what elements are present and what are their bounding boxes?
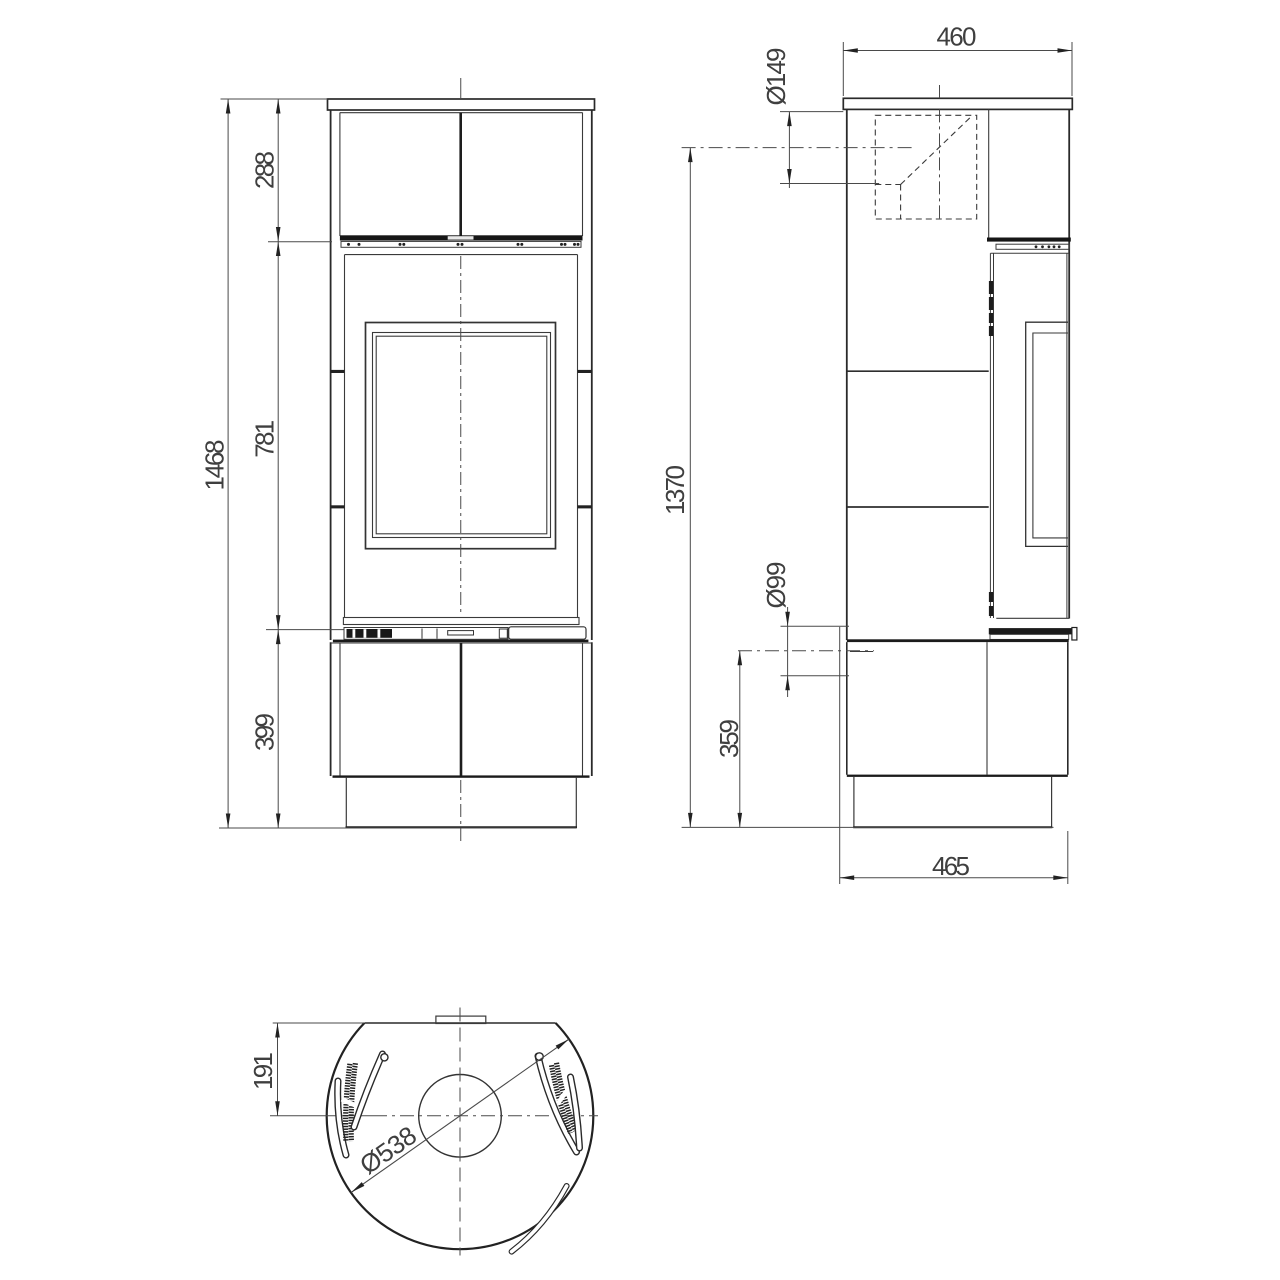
svg-text:1370: 1370 [660, 465, 690, 515]
svg-text:Ø99: Ø99 [761, 562, 791, 609]
svg-text:465: 465 [932, 851, 970, 881]
svg-text:399: 399 [250, 713, 280, 751]
svg-text:191: 191 [248, 1052, 278, 1090]
svg-text:Ø149: Ø149 [761, 48, 791, 106]
svg-text:460: 460 [937, 21, 977, 51]
svg-text:359: 359 [714, 719, 744, 758]
svg-text:781: 781 [250, 420, 280, 458]
svg-text:1468: 1468 [200, 440, 230, 491]
svg-text:288: 288 [250, 151, 280, 189]
